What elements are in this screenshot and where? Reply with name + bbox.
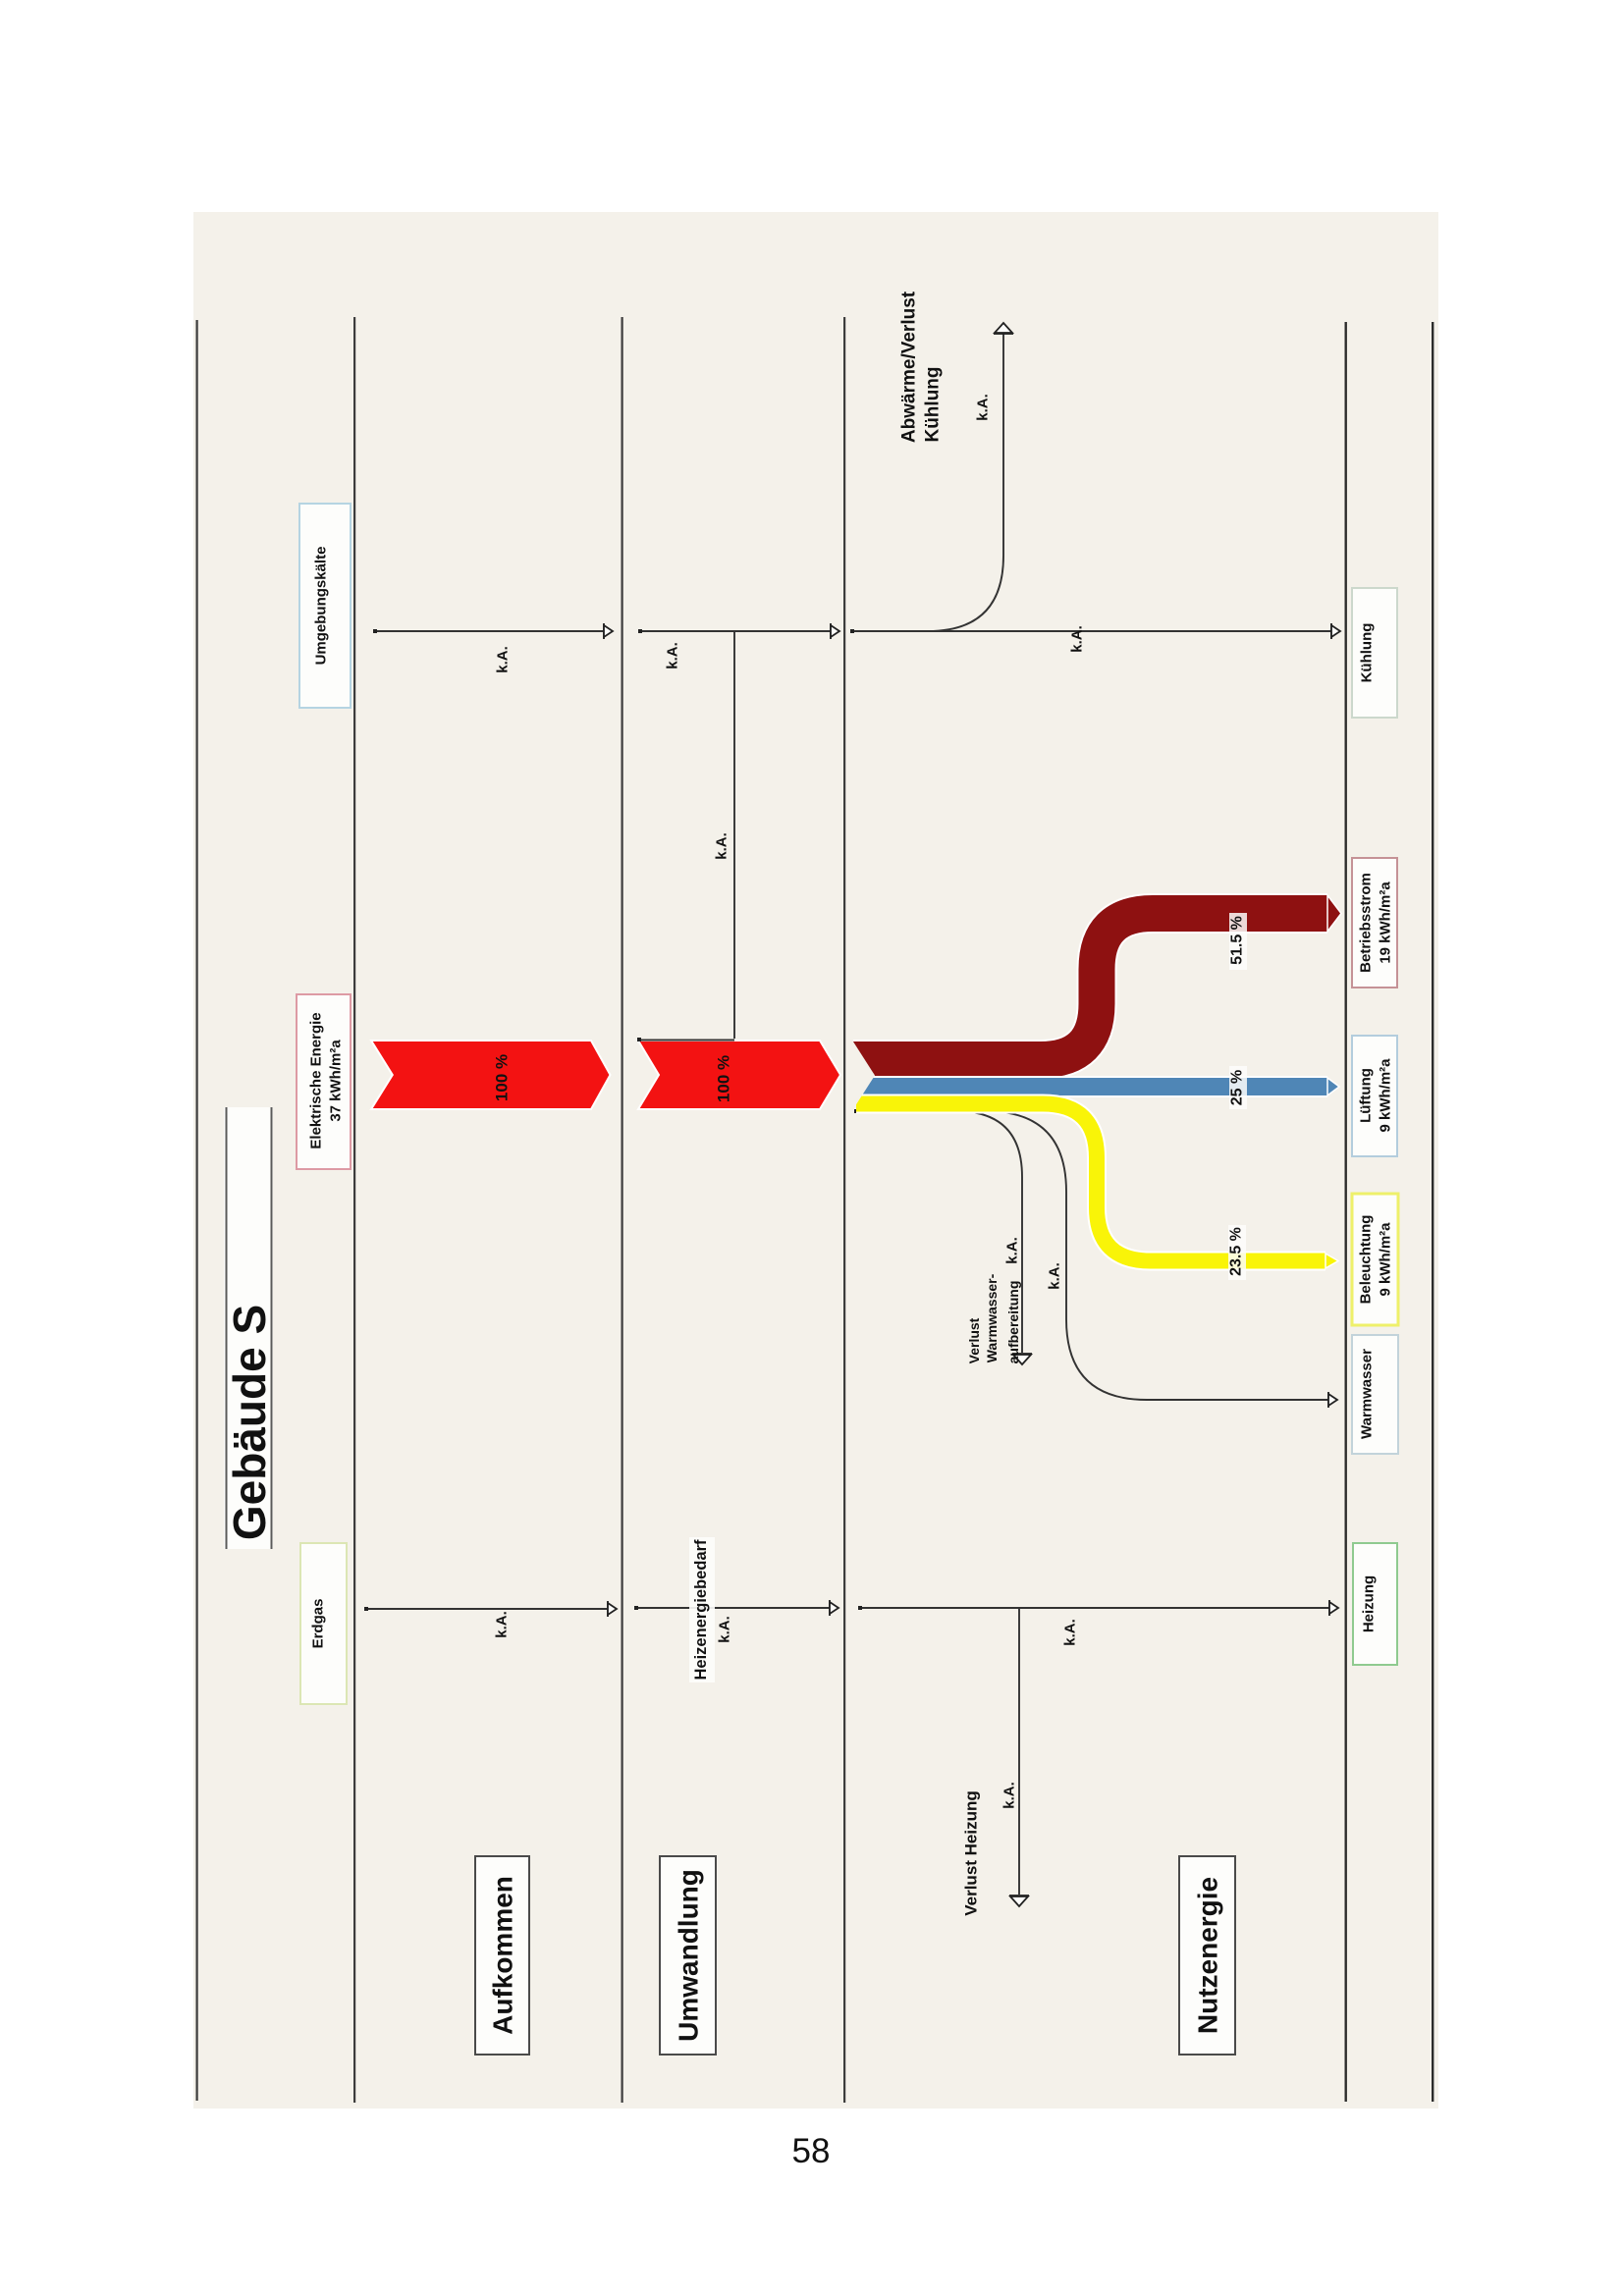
svg-text:23.5 %: 23.5 % [1228,1227,1245,1276]
svg-text:Erdgas: Erdgas [310,1599,327,1649]
svg-text:k.A.: k.A. [717,1616,733,1643]
svg-text:Verlust Heizung: Verlust Heizung [962,1790,981,1916]
svg-text:k.A.: k.A. [1069,625,1086,653]
svg-text:58: 58 [792,2132,831,2170]
svg-text:Betriebsstrom: Betriebsstrom [1358,873,1375,973]
svg-text:Warmwasser-: Warmwasser- [984,1273,1000,1362]
svg-text:Gebäude S: Gebäude S [224,1305,275,1540]
svg-text:Aufkommen: Aufkommen [488,1876,518,2035]
svg-text:k.A.: k.A. [494,1611,511,1638]
svg-text:100 %: 100 % [715,1055,733,1102]
svg-text:k.A.: k.A. [1001,1782,1018,1809]
svg-text:9 kWh/m²a: 9 kWh/m²a [1378,1058,1394,1133]
svg-text:Lüftung: Lüftung [1358,1068,1375,1123]
svg-text:Umgebungskälte: Umgebungskälte [313,547,330,666]
svg-text:Heizenergiebedarf: Heizenergiebedarf [692,1539,710,1681]
svg-text:k.A.: k.A. [495,646,512,673]
svg-text:Warmwasser: Warmwasser [1359,1349,1376,1439]
svg-text:37 kWh/m²a: 37 kWh/m²a [328,1040,345,1122]
svg-text:Kühlung: Kühlung [1359,623,1376,683]
svg-text:9 kWh/m²a: 9 kWh/m²a [1378,1222,1394,1297]
svg-text:k.A.: k.A. [1047,1262,1063,1290]
svg-text:Nutzenergie: Nutzenergie [1193,1877,1223,2034]
svg-text:19 kWh/m²a: 19 kWh/m²a [1378,881,1394,964]
svg-text:Kühlung: Kühlung [923,366,944,442]
svg-text:k.A.: k.A. [665,642,681,669]
svg-text:100 %: 100 % [493,1054,512,1101]
svg-text:aufbereitung: aufbereitung [1005,1281,1021,1364]
svg-text:Umwandlung: Umwandlung [674,1869,704,2042]
svg-text:Verlust: Verlust [966,1317,982,1363]
svg-text:k.A.: k.A. [1062,1619,1079,1646]
svg-text:Heizung: Heizung [1361,1575,1378,1632]
svg-text:25 %: 25 % [1229,1070,1246,1105]
svg-text:Beleuchtung: Beleuchtung [1358,1215,1375,1305]
svg-text:Elektrische Energie: Elektrische Energie [308,1012,325,1148]
svg-text:k.A.: k.A. [975,394,992,421]
svg-text:51.5 %: 51.5 % [1229,916,1246,965]
svg-text:k.A.: k.A. [714,832,730,860]
svg-text:k.A.: k.A. [1004,1237,1021,1264]
svg-text:Abwärme/Verlust: Abwärme/Verlust [899,291,920,443]
